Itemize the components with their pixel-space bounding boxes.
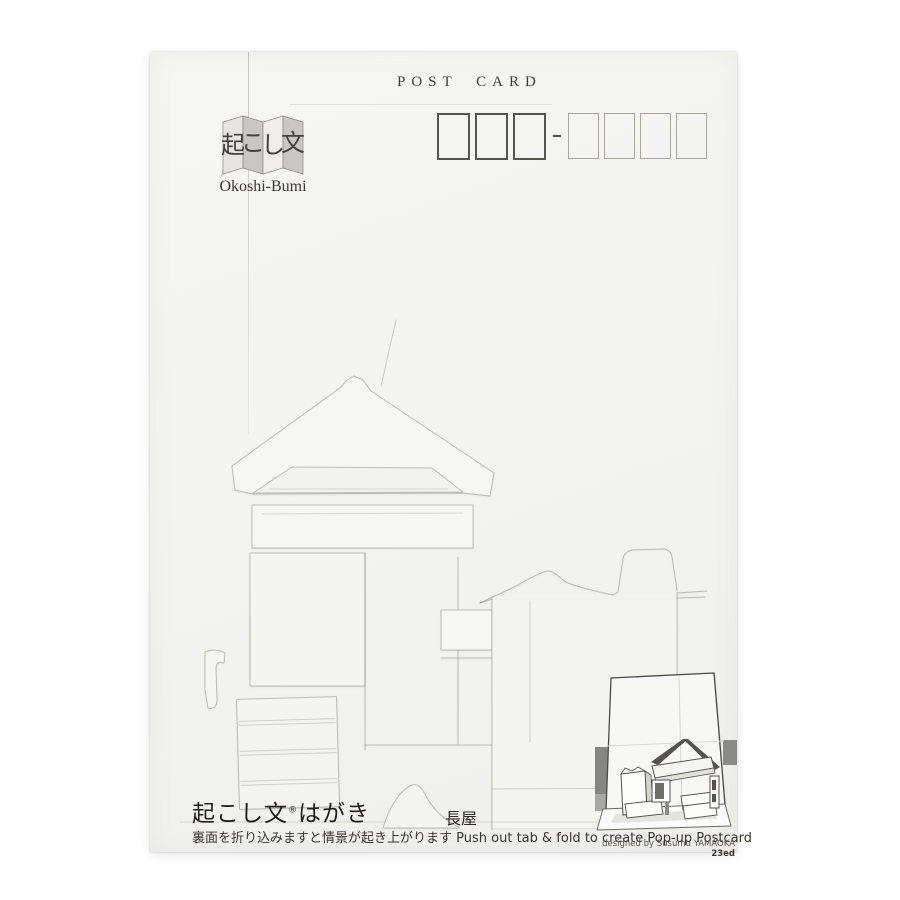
emboss-tower	[613, 549, 677, 595]
photo-background: 起 こ し 文 Okoshi-Bumi POST CARD	[0, 0, 900, 900]
brand-name: 起こし文®はがき	[192, 794, 370, 828]
emboss-thread	[381, 320, 396, 386]
credit-text: designed by Susumu YAMAOKA	[602, 839, 735, 849]
emboss-door-left	[250, 553, 365, 686]
instruction-japanese: 裏面を折り込みますと情景が起き上がります	[192, 831, 452, 846]
postcard: 起 こ し 文 Okoshi-Bumi POST CARD	[150, 52, 737, 852]
emboss-lantern-box	[441, 610, 492, 650]
emboss-post	[205, 650, 225, 708]
brand-kanji: 起こし文	[192, 801, 288, 827]
backdrop-band-right	[723, 740, 737, 765]
designer-credit: designed by Susumu YAMAOKA 23ed	[602, 839, 735, 859]
emboss-signboard	[252, 505, 473, 548]
registered-mark: ®	[288, 805, 298, 815]
emboss-torn-edge	[480, 571, 613, 603]
scene-title: 長屋	[445, 805, 477, 829]
edition-tag: 23ed	[711, 849, 735, 859]
emboss-fence	[237, 697, 340, 810]
brand-suffix: はがき	[298, 801, 370, 827]
popup-example-illustration	[595, 654, 737, 854]
